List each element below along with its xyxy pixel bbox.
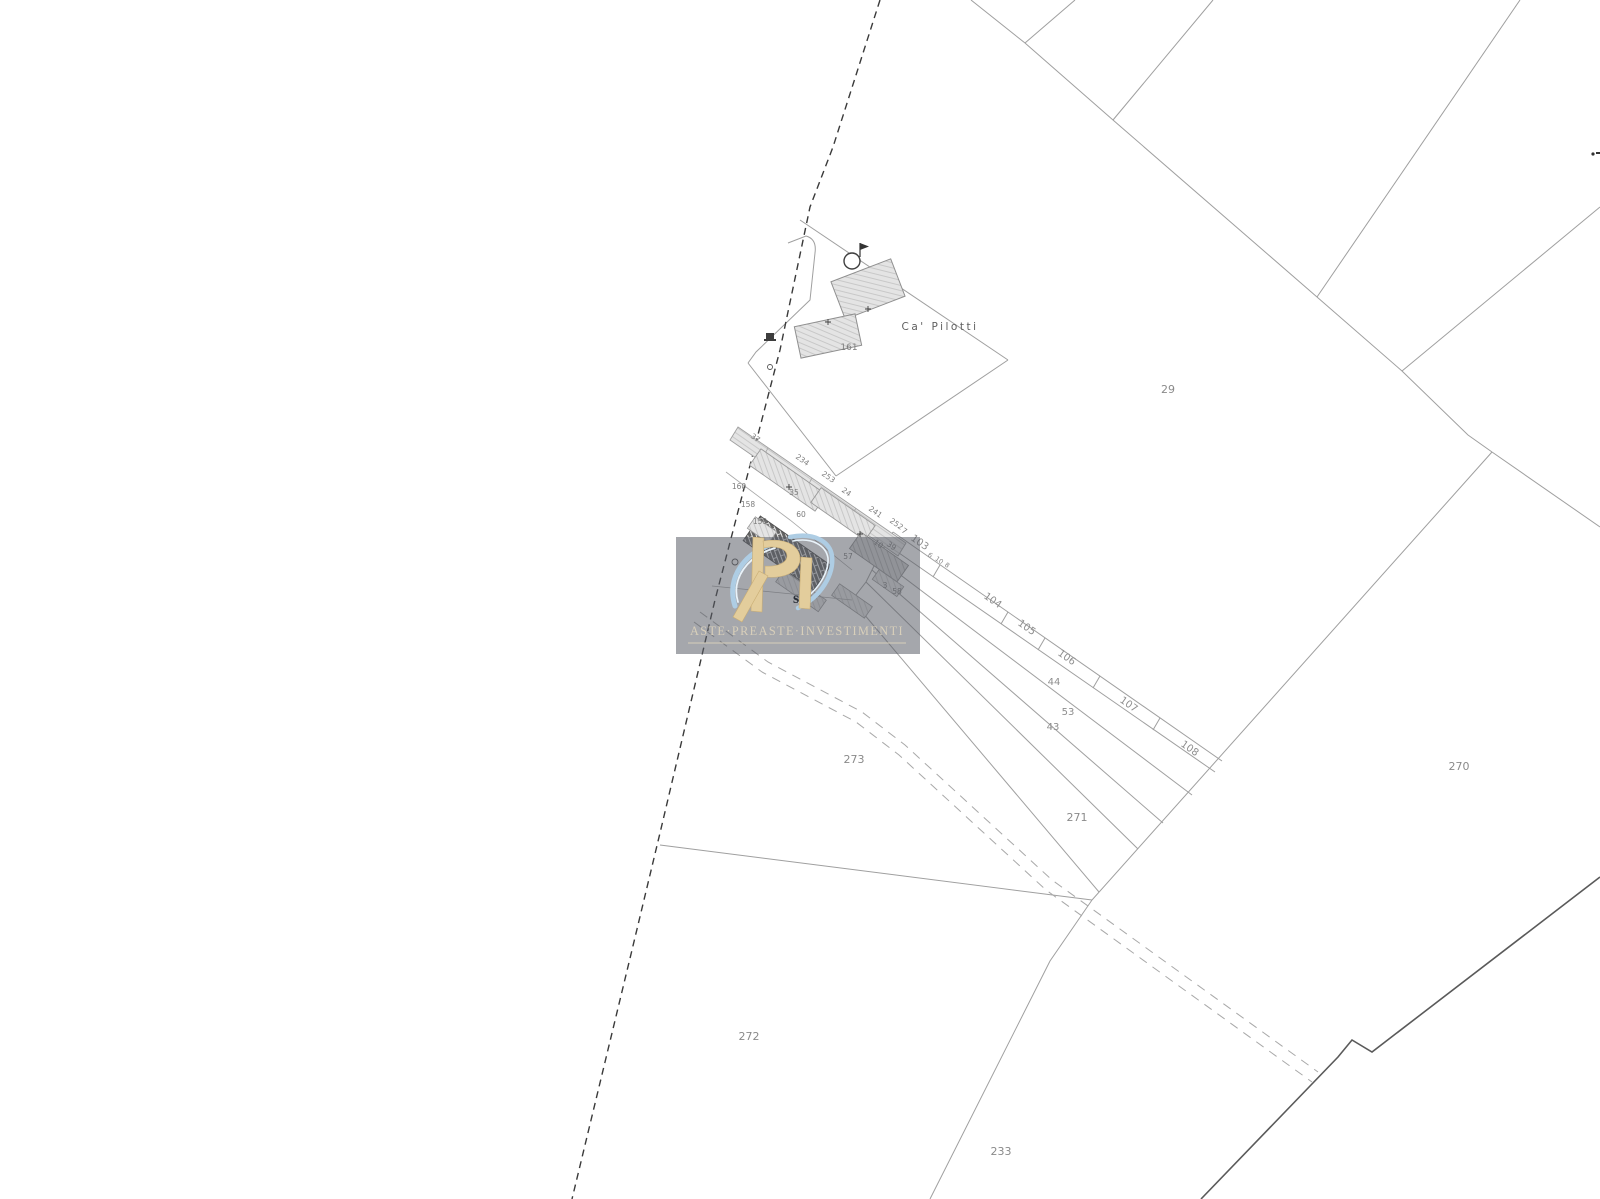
strip-cell-tick-3 xyxy=(1038,638,1045,650)
boundary-top-spur-1 xyxy=(1025,0,1075,43)
cutoff-edge-mark xyxy=(1591,152,1600,156)
parcel-label-272: 272 xyxy=(739,1030,760,1043)
dashed-track-north xyxy=(700,612,1318,1072)
cadastral-map: 29 270 271 272 273 233 103 104 105 106 1… xyxy=(0,0,1600,1199)
parcel-label-271: 271 xyxy=(1067,811,1088,824)
row-label-43: 43 xyxy=(1047,722,1060,733)
building-row-b xyxy=(811,488,875,541)
parcel-labels: 29 270 271 272 273 233 103 104 105 106 1… xyxy=(732,321,1470,1158)
strip-label-104: 104 xyxy=(981,591,1003,611)
building-label-161: 161 xyxy=(840,343,857,353)
parcel-label-273: 273 xyxy=(844,753,865,766)
parcel-label-233: 233 xyxy=(991,1145,1012,1158)
cluster-label-8: 8 xyxy=(943,561,951,570)
row-label-53: 53 xyxy=(1062,707,1075,718)
watermark-brand-text: ASTE·PREASTE·INVESTIMENTI xyxy=(690,623,904,638)
strip-cell-tick-2 xyxy=(1001,612,1008,624)
well-circle-symbol xyxy=(844,253,860,269)
boundary-270-west xyxy=(1092,452,1492,900)
cluster-label-158: 158 xyxy=(741,500,756,509)
strip-label-108: 108 xyxy=(1178,739,1200,759)
cluster-label-234: 234 xyxy=(794,452,811,468)
small-circle-symbol-1 xyxy=(768,365,773,370)
cluster-label-10b: 10 xyxy=(933,555,944,566)
strip-cell-tick-1 xyxy=(933,565,940,577)
boundary-right-spur xyxy=(1402,207,1600,371)
strip-line-2 xyxy=(886,544,1215,772)
place-label-capilotti: Ca' Pilotti xyxy=(901,321,978,333)
cluster-label-60: 60 xyxy=(796,510,806,519)
boundary-dark-southeast xyxy=(1201,877,1600,1199)
strip-cell-tick-4 xyxy=(1093,676,1100,688)
parcel-label-29: 29 xyxy=(1161,383,1175,396)
cluster-label-6: 6 xyxy=(926,551,934,560)
cluster-label-253: 253 xyxy=(820,469,837,485)
watermark: s ASTE·PREASTE·INVESTIMENTI xyxy=(676,536,920,654)
boundary-southeast-branch xyxy=(1492,452,1600,527)
strip-label-105: 105 xyxy=(1015,618,1037,638)
cluster-label-159: 159 xyxy=(753,517,768,526)
strip-cell-tick-5 xyxy=(1153,718,1160,730)
boundary-main-northeast xyxy=(971,0,1492,452)
boundary-29-southwest xyxy=(836,360,1008,476)
cadastral-map-canvas[interactable]: 29 270 271 272 273 233 103 104 105 106 1… xyxy=(0,0,1600,1199)
dashed-track-south xyxy=(694,622,1312,1082)
flag-symbol xyxy=(860,243,869,257)
boundary-top-spur-2 xyxy=(1113,0,1213,120)
cluster-label-24: 24 xyxy=(840,486,853,499)
monogram-i-bar xyxy=(799,557,812,609)
row-label-44: 44 xyxy=(1048,677,1061,688)
cluster-label-35: 35 xyxy=(789,488,799,497)
parcel-label-270: 270 xyxy=(1449,760,1470,773)
cluster-label-160: 160 xyxy=(732,482,747,491)
monogram-letter: s xyxy=(793,590,799,607)
boundary-top-spur-3 xyxy=(1317,0,1520,297)
strip-line-3 xyxy=(878,558,1192,795)
strip-label-106: 106 xyxy=(1055,648,1077,668)
